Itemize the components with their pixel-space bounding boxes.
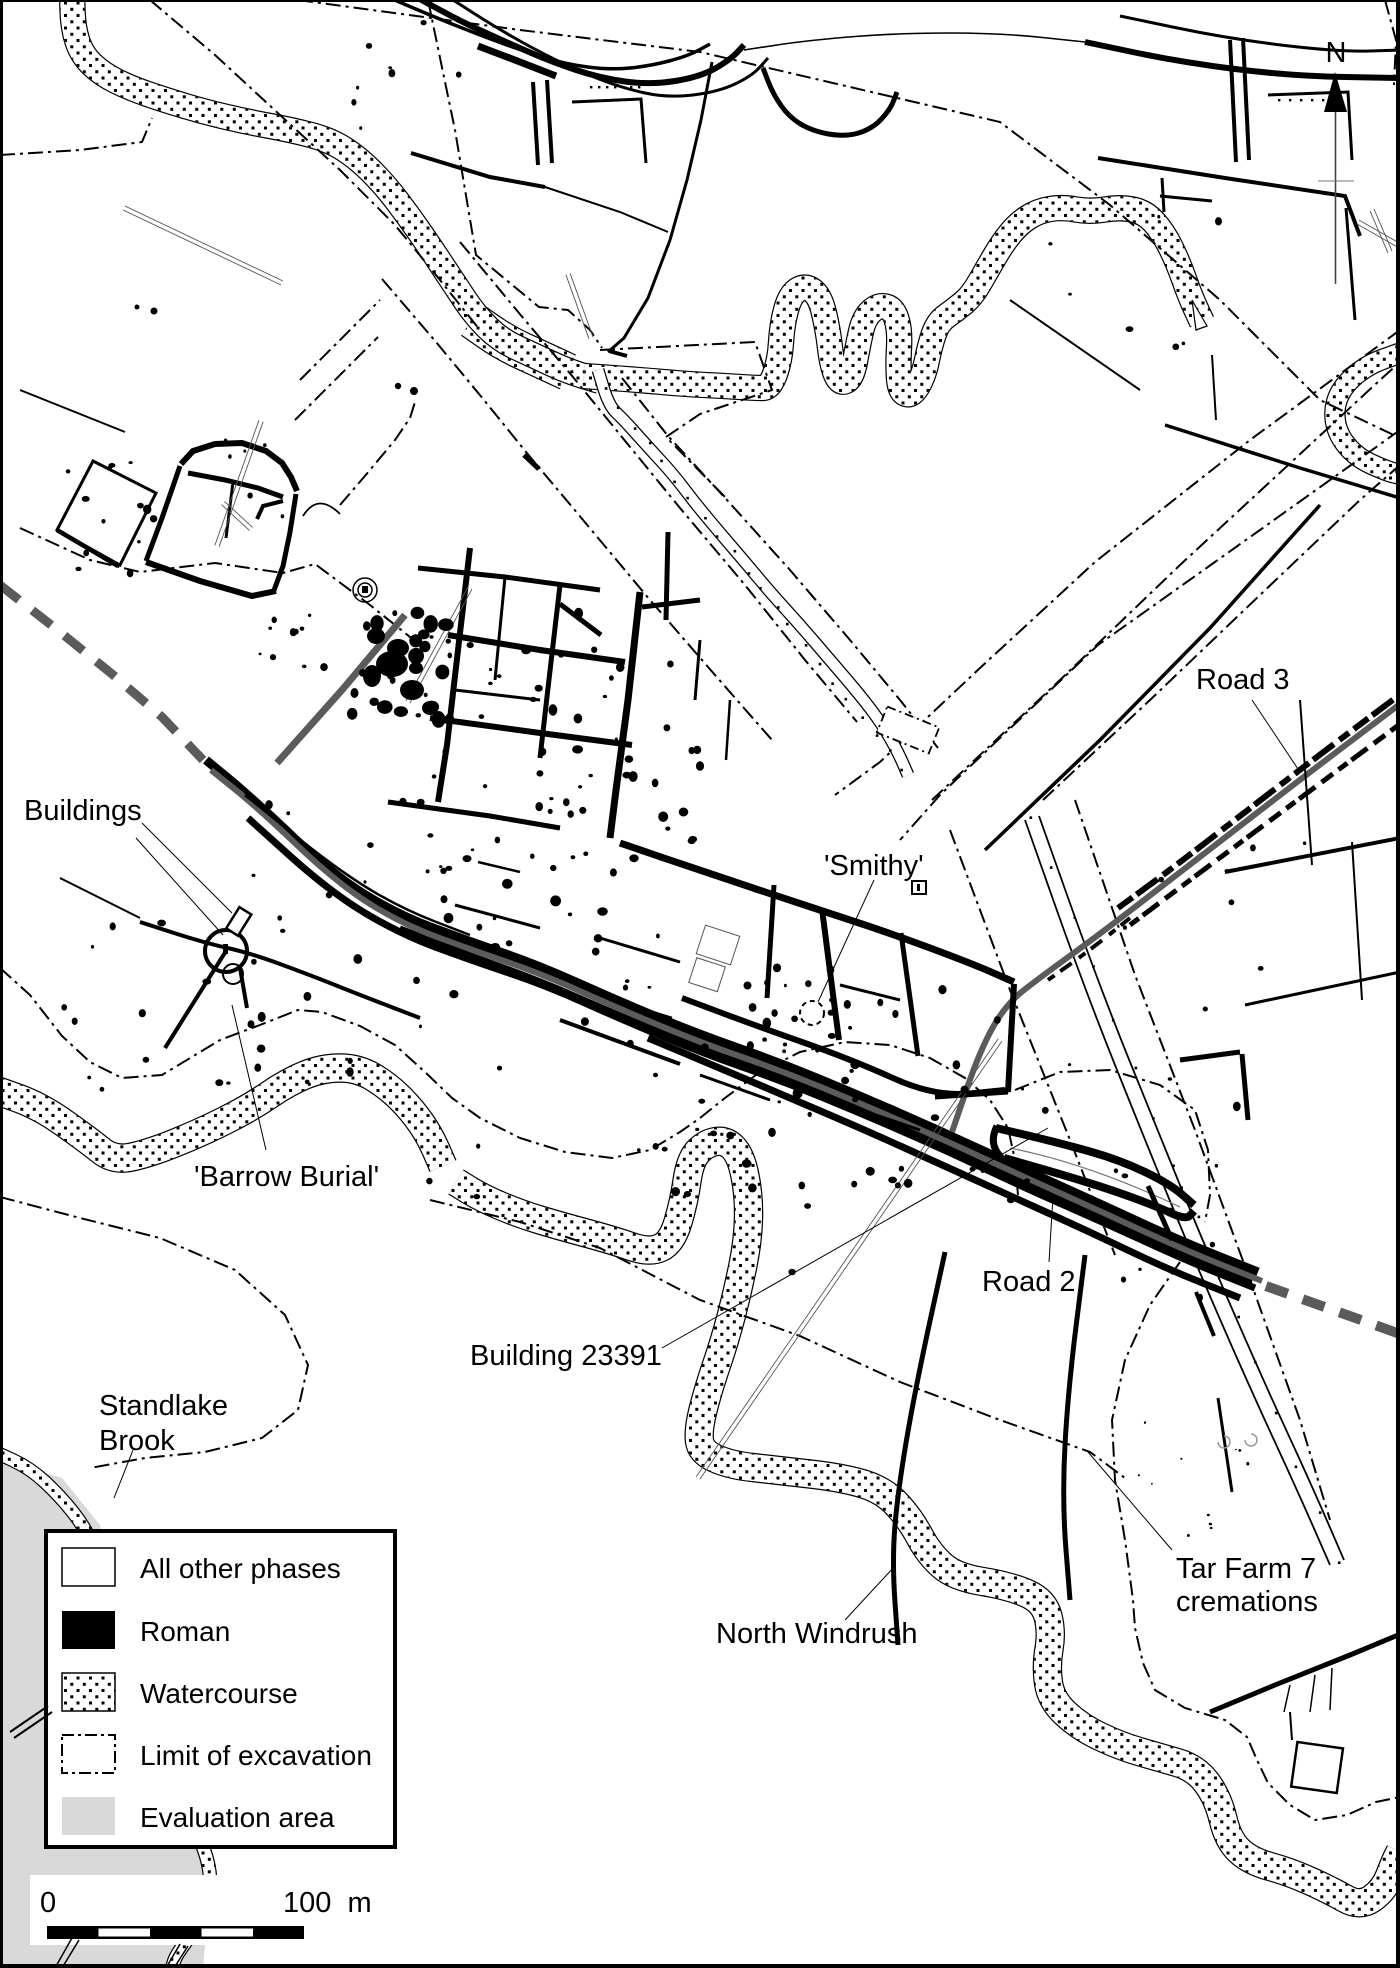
svg-text:'Smithy': 'Smithy': [824, 850, 924, 882]
svg-text:0: 0: [40, 1887, 56, 1919]
svg-text:Standlake: Standlake: [99, 1390, 228, 1422]
svg-text:All other phases: All other phases: [140, 1553, 341, 1584]
svg-text:Building 23391: Building 23391: [470, 1340, 662, 1372]
svg-text:Brook: Brook: [99, 1425, 175, 1457]
svg-text:N: N: [1326, 37, 1347, 69]
svg-text:Tar Farm 7: Tar Farm 7: [1176, 1553, 1316, 1585]
svg-text:100 m: 100 m: [283, 1887, 372, 1919]
svg-text:Road 2: Road 2: [982, 1266, 1076, 1298]
svg-text:Buildings: Buildings: [24, 795, 142, 827]
svg-text:Watercourse: Watercourse: [140, 1678, 298, 1709]
svg-text:Limit of excavation: Limit of excavation: [140, 1740, 372, 1771]
svg-text:'Barrow Burial': 'Barrow Burial': [194, 1161, 379, 1193]
svg-text:Roman: Roman: [140, 1616, 230, 1647]
svg-text:Evaluation area: Evaluation area: [140, 1802, 335, 1833]
svg-text:North Windrush: North Windrush: [716, 1618, 917, 1650]
svg-text:Road 3: Road 3: [1196, 664, 1290, 696]
svg-text:cremations: cremations: [1176, 1586, 1318, 1618]
